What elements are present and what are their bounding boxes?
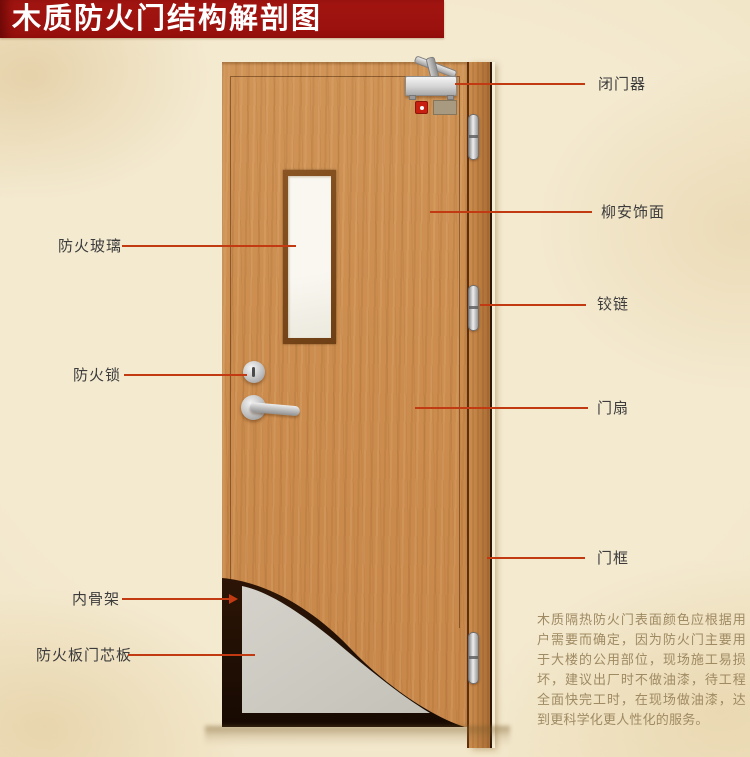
hinge-top <box>468 114 479 160</box>
leader-fire-lock <box>124 374 247 376</box>
floor-shadow <box>205 726 510 746</box>
leader-fire-glass <box>122 245 296 247</box>
leader-door-leaf <box>415 407 588 409</box>
label-door-leaf: 门扇 <box>597 401 629 416</box>
label-fire-board-core: 防火板门芯板 <box>36 648 132 663</box>
label-hinge: 铰链 <box>597 297 629 312</box>
leader-inner-skeleton <box>122 598 229 600</box>
leader-door-frame <box>487 557 585 559</box>
door-closer-body <box>405 76 457 96</box>
strike-plate <box>433 100 457 115</box>
label-door-closer: 闭门器 <box>598 77 646 92</box>
leader-lauan-veneer <box>430 211 592 213</box>
label-fire-glass: 防火玻璃 <box>58 239 122 254</box>
vision-panel <box>283 170 336 344</box>
label-fire-lock: 防火锁 <box>73 368 121 383</box>
leader-fire-board-core <box>128 654 255 656</box>
hinge-bottom <box>468 632 479 684</box>
description-text: 木质隔热防火门表面颜色应根据用户需要而确定，因为防火门主要用于大楼的公用部位，现… <box>537 610 746 730</box>
door-leaf-illustration <box>222 62 467 727</box>
leader-hinge <box>480 304 586 306</box>
hinge-middle <box>468 285 479 331</box>
fire-glass-pane <box>288 176 331 338</box>
closer-foot-left <box>409 95 416 100</box>
leaf-groove-line <box>230 76 460 628</box>
label-inner-skeleton: 内骨架 <box>72 592 120 607</box>
page-title: 木质防火门结构解剖图 <box>0 0 444 38</box>
label-lauan-veneer: 柳安饰面 <box>601 205 665 220</box>
arrowhead-inner-skeleton <box>229 594 238 604</box>
leader-door-closer <box>455 83 585 85</box>
red-indicator-light <box>415 101 428 114</box>
lock-cylinder <box>243 361 265 383</box>
label-door-frame: 门框 <box>597 551 629 566</box>
